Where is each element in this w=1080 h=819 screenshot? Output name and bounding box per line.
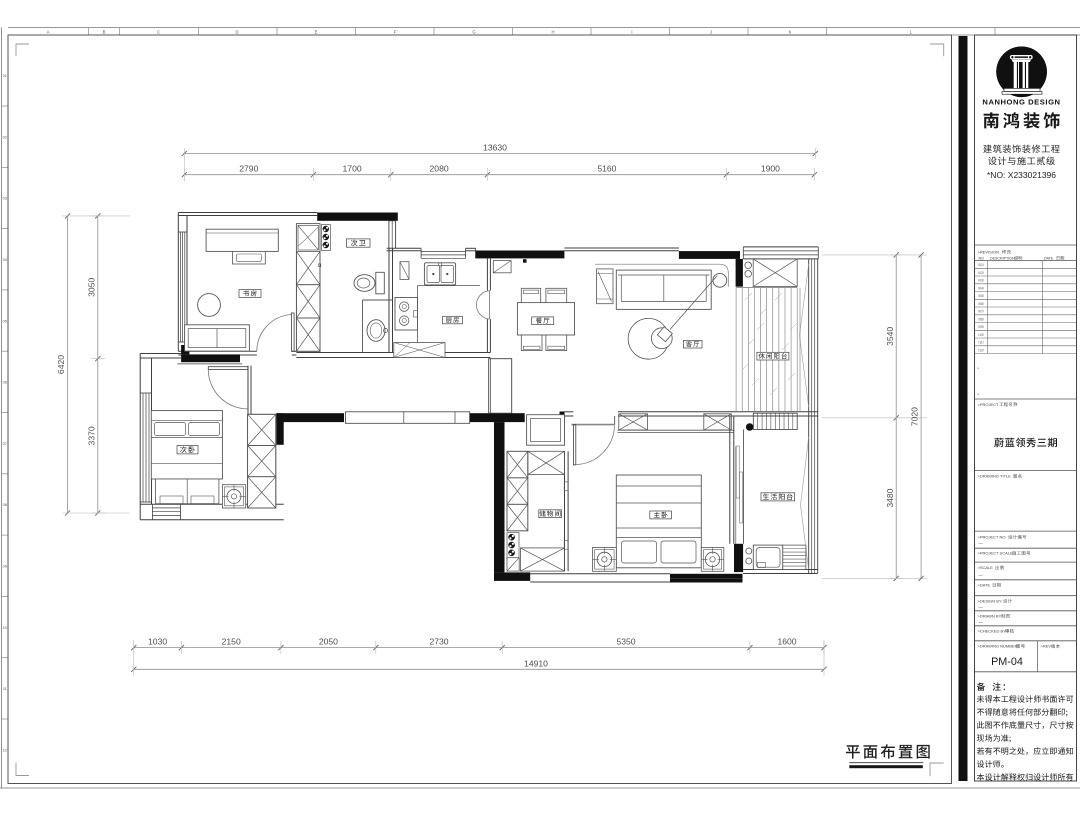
svg-text:5350: 5350 — [616, 636, 635, 646]
svg-text:1600: 1600 — [777, 636, 796, 646]
svg-text:06: 06 — [3, 381, 7, 385]
svg-text:1900: 1900 — [761, 164, 780, 174]
svg-text:>DATE: >DATE — [978, 582, 991, 587]
svg-text:3480: 3480 — [885, 488, 895, 507]
svg-text:3370: 3370 — [86, 426, 96, 445]
svg-text:14910: 14910 — [524, 658, 548, 668]
svg-text:>DESIGN BY: >DESIGN BY — [978, 598, 1002, 603]
svg-text:K: K — [789, 29, 792, 34]
svg-text:7020: 7020 — [910, 407, 920, 426]
svg-text:PM-04: PM-04 — [991, 656, 1023, 668]
svg-text:DATE: DATE — [1044, 256, 1054, 260]
svg-text:>DRAWING TITLE: >DRAWING TITLE — [978, 474, 1012, 479]
svg-text:/03/: /03/ — [978, 279, 984, 283]
svg-text:10: 10 — [3, 626, 7, 630]
svg-text:2790: 2790 — [239, 164, 258, 174]
svg-text:1030: 1030 — [148, 636, 167, 646]
svg-text:/08/: /08/ — [978, 317, 984, 321]
svg-text:3540: 3540 — [885, 327, 895, 346]
svg-text:05: 05 — [3, 319, 7, 323]
svg-text:>PROJECT SCALE: >PROJECT SCALE — [978, 551, 1013, 556]
svg-text:/10/: /10/ — [978, 333, 984, 337]
svg-text:13630: 13630 — [483, 142, 507, 152]
svg-text:D: D — [235, 29, 238, 34]
svg-text:07: 07 — [3, 442, 7, 446]
svg-text:01: 01 — [3, 74, 7, 78]
svg-text:/05/: /05/ — [978, 294, 984, 298]
svg-text:*NO: X233021396: *NO: X233021396 — [987, 170, 1056, 180]
svg-text:1700: 1700 — [343, 164, 362, 174]
svg-text:F: F — [394, 29, 397, 34]
svg-text:>SCALE: >SCALE — [978, 565, 994, 570]
svg-text:H: H — [551, 29, 554, 34]
svg-text:A: A — [47, 29, 50, 34]
svg-text:/04/: /04/ — [978, 286, 984, 290]
svg-text:11: 11 — [3, 687, 7, 691]
svg-text:/11/: /11/ — [978, 341, 983, 345]
svg-text:/01/: /01/ — [978, 263, 984, 267]
svg-text:2080: 2080 — [430, 164, 449, 174]
svg-text:12: 12 — [3, 748, 7, 752]
svg-text:>REVISION: >REVISION — [978, 249, 1000, 254]
svg-text:2150: 2150 — [222, 636, 241, 646]
svg-text:6420: 6420 — [56, 355, 66, 374]
svg-text:/06/: /06/ — [978, 302, 984, 306]
svg-text:2730: 2730 — [429, 636, 448, 646]
svg-text:E: E — [315, 29, 318, 34]
svg-text:NO: NO — [979, 256, 985, 260]
svg-text:>DRAWN BY: >DRAWN BY — [978, 613, 1002, 618]
svg-text:02: 02 — [3, 135, 7, 139]
svg-text:/09/: /09/ — [978, 325, 984, 329]
svg-text:2050: 2050 — [319, 636, 338, 646]
svg-text:/02/: /02/ — [978, 271, 984, 275]
svg-text:I: I — [631, 29, 632, 34]
svg-text:C: C — [157, 29, 160, 34]
svg-text:04: 04 — [3, 258, 7, 262]
svg-text:>REV: >REV — [1041, 644, 1052, 649]
svg-text:NANHONG DESIGN: NANHONG DESIGN — [982, 97, 1060, 106]
svg-text:/07/: /07/ — [978, 310, 984, 314]
svg-text:3050: 3050 — [86, 278, 96, 297]
svg-text:5160: 5160 — [597, 164, 616, 174]
svg-text:B: B — [103, 29, 106, 34]
svg-text:>PROJECT: >PROJECT — [978, 402, 1000, 407]
svg-text:DESCRIPTION: DESCRIPTION — [990, 256, 1015, 260]
svg-text:J: J — [710, 29, 712, 34]
svg-text:G: G — [472, 29, 475, 34]
svg-text:>PROJECT NO.: >PROJECT NO. — [978, 534, 1007, 539]
svg-text:08: 08 — [3, 503, 7, 507]
svg-text:03: 03 — [3, 197, 7, 201]
svg-text:>CHECKED BY: >CHECKED BY — [978, 628, 1007, 633]
svg-text:/12/: /12/ — [978, 348, 984, 352]
svg-text:>DRAWING NUMBER: >DRAWING NUMBER — [978, 644, 1018, 649]
svg-text:09: 09 — [3, 565, 7, 569]
